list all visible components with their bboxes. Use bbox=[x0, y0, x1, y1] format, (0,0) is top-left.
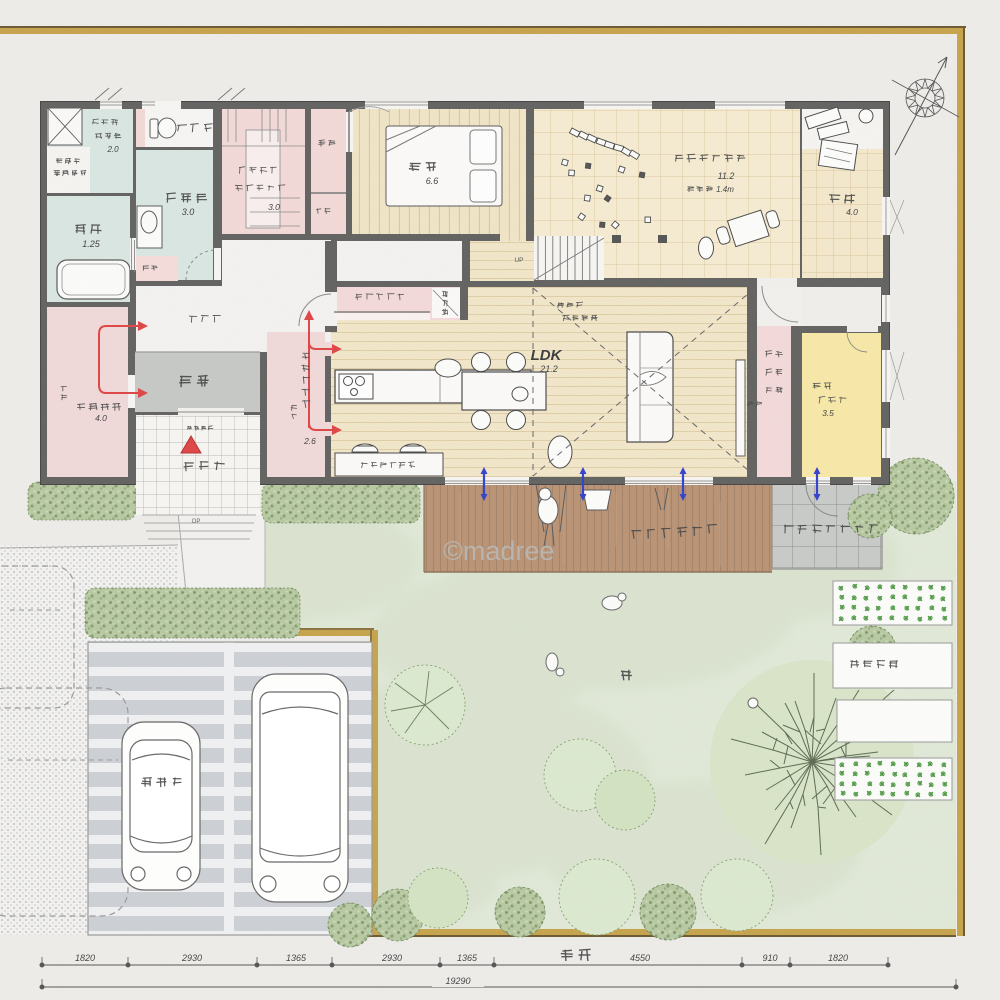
svg-text:LDK: LDK bbox=[531, 347, 563, 364]
svg-text:11.2: 11.2 bbox=[718, 171, 735, 181]
svg-text:1.4m: 1.4m bbox=[716, 185, 734, 194]
svg-text:2.0: 2.0 bbox=[106, 145, 119, 154]
svg-text:©madree: ©madree bbox=[443, 536, 554, 566]
svg-text:3.0: 3.0 bbox=[268, 202, 280, 212]
svg-text:3.5: 3.5 bbox=[822, 408, 834, 418]
svg-text:3.0: 3.0 bbox=[182, 207, 195, 217]
svg-text:6.6: 6.6 bbox=[426, 176, 439, 186]
svg-text:4.0: 4.0 bbox=[95, 413, 107, 423]
svg-text:OP: OP bbox=[192, 519, 201, 525]
svg-text:2.6: 2.6 bbox=[303, 436, 316, 446]
svg-text:21.2: 21.2 bbox=[539, 364, 558, 374]
svg-text:4.0: 4.0 bbox=[846, 207, 858, 217]
svg-text:1.25: 1.25 bbox=[82, 239, 101, 249]
